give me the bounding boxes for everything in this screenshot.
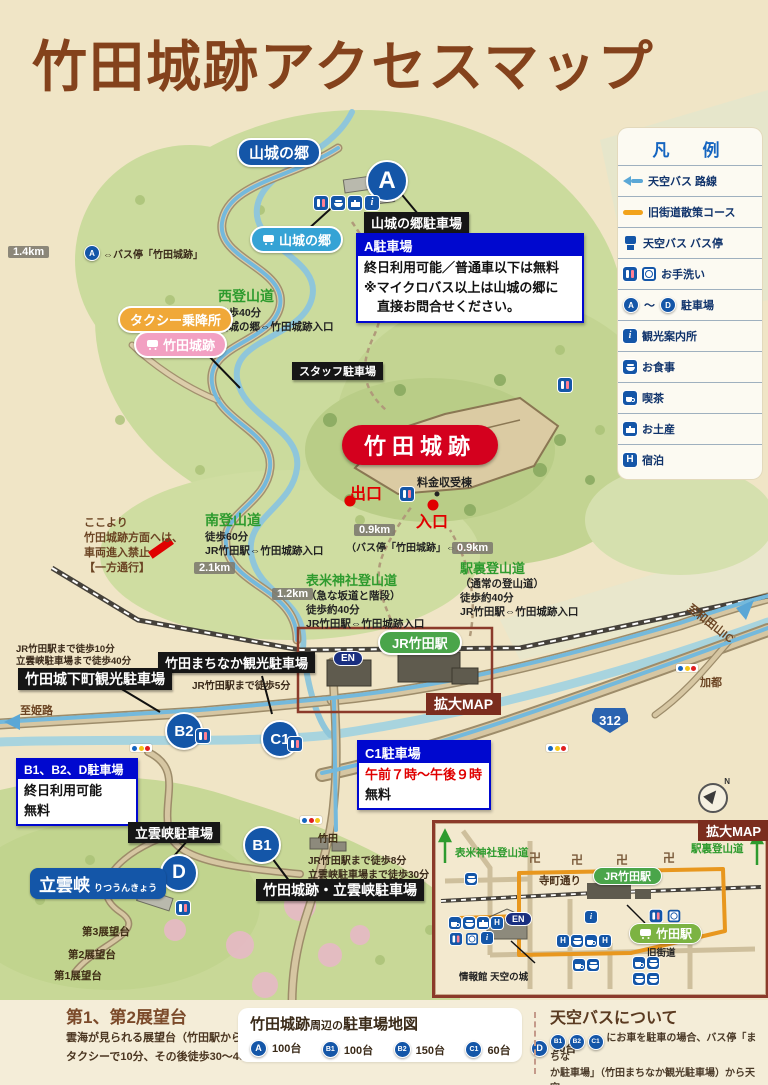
bus-link-note-a: A ⇔バス停「竹田城跡」 bbox=[84, 245, 203, 261]
jokamachi-parking-label: 竹田城下町観光駐車場 bbox=[18, 668, 172, 690]
food-icon bbox=[647, 973, 659, 985]
bus-icon bbox=[146, 339, 159, 351]
parking-a-box-title: A駐車場 bbox=[358, 235, 582, 256]
old-road-course-icon bbox=[623, 210, 643, 215]
distance-0-9km-bus: 0.9km bbox=[354, 524, 395, 536]
cafe-icon bbox=[623, 391, 637, 405]
inset-facility-icons-row3: H H bbox=[557, 935, 611, 947]
hotel-icon: H bbox=[557, 935, 569, 947]
traffic-light bbox=[130, 744, 152, 752]
yamajiro-bus-stop: 山城の郷 bbox=[250, 226, 343, 253]
access-map-page: 竹田城跡アクセスマップ 凡 例 天空バス 路線 旧街道散策コース 天空バス バス… bbox=[0, 0, 768, 1085]
bus-icon bbox=[639, 928, 652, 940]
toilet-icon bbox=[650, 910, 663, 923]
yamajiro-facility-icons: i bbox=[314, 196, 379, 210]
jokamachi-parking-notes: JR竹田駅まで徒歩10分 立雲峡駐車場まで徒歩40分 bbox=[16, 644, 131, 669]
hotel-icon: H bbox=[491, 917, 503, 929]
parking-stat: C160台 bbox=[465, 1041, 510, 1058]
distance-1-4km: 1.4km bbox=[8, 246, 49, 258]
south-trail-note: 南登山道 徒歩60分 JR竹田駅⇔竹田城跡入口 bbox=[205, 510, 323, 558]
taxi-stand-label: タクシー乗降所 bbox=[118, 306, 233, 333]
legend-row-bus-stop: 天空バス バス停 bbox=[618, 227, 762, 258]
temple-symbol: 卍 bbox=[571, 851, 583, 868]
skybus-title: 天空バスについて bbox=[550, 1004, 762, 1028]
b1-parking-label: 竹田城跡・立雲峡駐車場 bbox=[256, 879, 424, 901]
parking-a-icon: A bbox=[623, 297, 639, 313]
footer-parking-table: 竹田城跡周辺の駐車場地図 A100台 B1100台 B2150台 C160台 D… bbox=[238, 1008, 522, 1062]
takeda-town-label: 竹田 bbox=[318, 830, 338, 845]
distance-2-1km: 2.1km bbox=[194, 562, 235, 574]
info-icon: i bbox=[481, 932, 493, 944]
food-icon bbox=[465, 873, 477, 885]
food-icon bbox=[331, 196, 345, 210]
inset-takeda-bus-stop: 竹田駅 bbox=[629, 923, 702, 944]
souvenir-icon bbox=[477, 917, 489, 929]
compass: N bbox=[698, 783, 728, 813]
legend-row-food: お食事 bbox=[618, 351, 762, 382]
toilet-icon bbox=[623, 267, 637, 281]
cafe-icon bbox=[633, 957, 645, 969]
food-icon bbox=[623, 360, 637, 374]
info-house-label: 情報館 天空の城 bbox=[459, 969, 528, 983]
bus-icon bbox=[262, 234, 275, 246]
yamajiro-area-label: 山城の郷 bbox=[237, 138, 321, 167]
toilet-icon bbox=[450, 933, 462, 945]
bus-stop-icon bbox=[623, 236, 638, 251]
toilet-icon bbox=[314, 196, 328, 210]
distance-0-9km-trail: 0.9km bbox=[452, 542, 493, 554]
parking-b2-mini: B2 bbox=[569, 1034, 585, 1050]
inset-facility-icons-row4 bbox=[573, 959, 599, 971]
west-trail-note: 西登山道 徒歩40分 山城の郷⇔竹田城跡入口 bbox=[218, 286, 334, 334]
toilet-icon bbox=[558, 378, 572, 392]
traffic-light bbox=[676, 664, 698, 672]
temple-symbol: 卍 bbox=[663, 849, 675, 866]
parking-b1-marker: B1 bbox=[243, 826, 281, 864]
footer-divider bbox=[534, 1012, 536, 1074]
inset-facility-icons-row2: i bbox=[449, 932, 493, 946]
cafe-icon bbox=[449, 917, 461, 929]
teramachi-street-label: 寺町通り bbox=[539, 873, 581, 888]
b1-parking-notes: JR竹田駅まで徒歩8分 立雲峡駐車場まで徒歩30分 bbox=[308, 855, 429, 882]
toilet-icon bbox=[196, 729, 210, 743]
ekiura-trail-note: 駅裏登山道 （通常の登山道） 徒歩約40分 JR竹田駅⇔竹田城跡入口 bbox=[460, 558, 578, 620]
ritsuunkyo-label: 立雲峡 りつうんきょう bbox=[30, 868, 166, 899]
parking-d-icon: D bbox=[660, 297, 676, 313]
hotel-icon: H bbox=[599, 935, 611, 947]
parking-stat: A100台 bbox=[250, 1040, 301, 1057]
inset-facility-icons-row5 bbox=[633, 957, 659, 969]
castle-bus-stop: 竹田城跡 bbox=[134, 331, 227, 358]
info-icon: i bbox=[365, 196, 379, 210]
legend-title: 凡 例 bbox=[618, 136, 762, 161]
cafe-icon bbox=[573, 959, 585, 971]
jr-takeda-station-label: JR竹田駅 bbox=[378, 630, 462, 655]
kakudai-map-pointer-label: 拡大MAP bbox=[426, 693, 501, 715]
parking-stat: B1100台 bbox=[322, 1041, 373, 1058]
to-himeji-label: 至姫路 bbox=[20, 702, 53, 718]
kato-label: 加都 bbox=[700, 674, 722, 690]
wheelchair-icon bbox=[642, 267, 656, 281]
page-title: 竹田城跡アクセスマップ bbox=[32, 22, 655, 102]
parking-a-mini: A bbox=[84, 245, 100, 261]
parking-c1-mini: C1 bbox=[588, 1034, 604, 1050]
hyomai-trail-note: 表米神社登山道 （急な坂道と階段） 徒歩約40分 JR竹田駅⇔竹田城跡入口 bbox=[306, 570, 424, 632]
range-tilde: ～ bbox=[644, 297, 655, 313]
viewpoint-2-label: 第2展望台 bbox=[68, 947, 116, 962]
machinaka-parking-note: JR竹田駅まで徒歩5分 bbox=[192, 677, 290, 692]
legend-row-bus-route: 天空バス 路線 bbox=[618, 165, 762, 196]
legend-panel: 凡 例 天空バス 路線 旧街道散策コース 天空バス バス停 お手洗い A ～ D… bbox=[618, 128, 762, 479]
inset-ekiura-trail-label: 駅裏登山道 bbox=[691, 841, 744, 856]
toilet-icon bbox=[400, 487, 414, 501]
souvenir-icon bbox=[623, 422, 637, 436]
legend-row-souvenir: お土産 bbox=[618, 413, 762, 444]
machinaka-parking-label: 竹田まちなか観光駐車場 bbox=[158, 652, 315, 673]
food-icon bbox=[587, 959, 599, 971]
info-icon: i bbox=[623, 329, 637, 343]
souvenir-icon bbox=[348, 196, 362, 210]
no-entry-note: ここより 竹田城跡方面へは、 車両進入禁止 【一方通行】 bbox=[84, 516, 183, 575]
cafe-icon bbox=[585, 935, 597, 947]
legend-row-info: i 観光案内所 bbox=[618, 320, 762, 351]
food-icon bbox=[647, 957, 659, 969]
wheelchair-icon bbox=[466, 933, 478, 945]
en-badge: EN bbox=[505, 912, 532, 926]
viewpoint-3-label: 第3展望台 bbox=[82, 924, 130, 939]
yamajiro-parking-label: 山城の郷駐車場 bbox=[364, 212, 469, 233]
inset-hyomai-trail-label: 表米神社登山道 bbox=[455, 845, 529, 860]
sky-bus-route-icon bbox=[623, 176, 643, 186]
wheelchair-icon bbox=[668, 910, 681, 923]
inset-facility-icons-row1: H bbox=[449, 917, 503, 929]
parking-a-info-box: A駐車場 終日利用可能／普通車以下は無料 ※マイクロバス以上は山城の郷に 直接お… bbox=[356, 233, 584, 323]
parking-stat: B2150台 bbox=[394, 1041, 445, 1058]
food-icon bbox=[571, 935, 583, 947]
legend-row-toilet: お手洗い bbox=[618, 258, 762, 289]
temple-symbol: 卍 bbox=[529, 849, 541, 866]
food-icon bbox=[463, 917, 475, 929]
ritsuunkyo-parking-label: 立雲峡駐車場 bbox=[128, 822, 220, 843]
inset-enlarged-map: 拡大MAP 表米神社登山道 駅裏登山道 卍 卍 卍 卍 寺町通り JR竹田駅 i… bbox=[432, 820, 768, 998]
entrance-label: 入口 bbox=[416, 508, 448, 532]
parking-b-info-box: B1、B2、D駐車場 終日利用可能 無料 bbox=[16, 758, 138, 826]
traffic-light bbox=[300, 816, 322, 824]
parking-c1-info-box: C1駐車場 午前７時～午後９時 無料 bbox=[357, 740, 491, 810]
inset-jr-station-label: JR竹田駅 bbox=[593, 867, 662, 885]
food-icon bbox=[633, 973, 645, 985]
exit-label: 出口 bbox=[350, 480, 382, 504]
legend-row-old-road: 旧街道散策コース bbox=[618, 196, 762, 227]
legend-row-lodging: H 宿泊 bbox=[618, 444, 762, 475]
info-icon: i bbox=[585, 911, 597, 923]
viewpoint-1-label: 第1展望台 bbox=[54, 968, 102, 983]
inset-facility-icons-row6 bbox=[633, 973, 659, 985]
parking-b1-mini: B1 bbox=[550, 1034, 566, 1050]
legend-row-cafe: 喫茶 bbox=[618, 382, 762, 413]
inset-title: 拡大MAP bbox=[698, 820, 768, 841]
toilet-icon bbox=[176, 901, 190, 915]
en-badge: EN bbox=[333, 651, 363, 666]
legend-row-parking: A ～ D 駐車場 bbox=[618, 289, 762, 320]
toilet-icon bbox=[288, 737, 302, 751]
footer-skybus: 天空バスについて B1 B2 C1 にお車を駐車の場合、バス停「まちな か駐車場… bbox=[550, 1004, 762, 1085]
toll-booth-label: 料金収受棟 bbox=[417, 474, 472, 490]
castle-label: 竹田城跡 bbox=[342, 425, 498, 465]
staff-parking-label: スタッフ駐車場 bbox=[292, 362, 383, 380]
hotel-icon: H bbox=[623, 453, 637, 467]
traffic-light bbox=[546, 744, 568, 752]
temple-symbol: 卍 bbox=[616, 851, 628, 868]
